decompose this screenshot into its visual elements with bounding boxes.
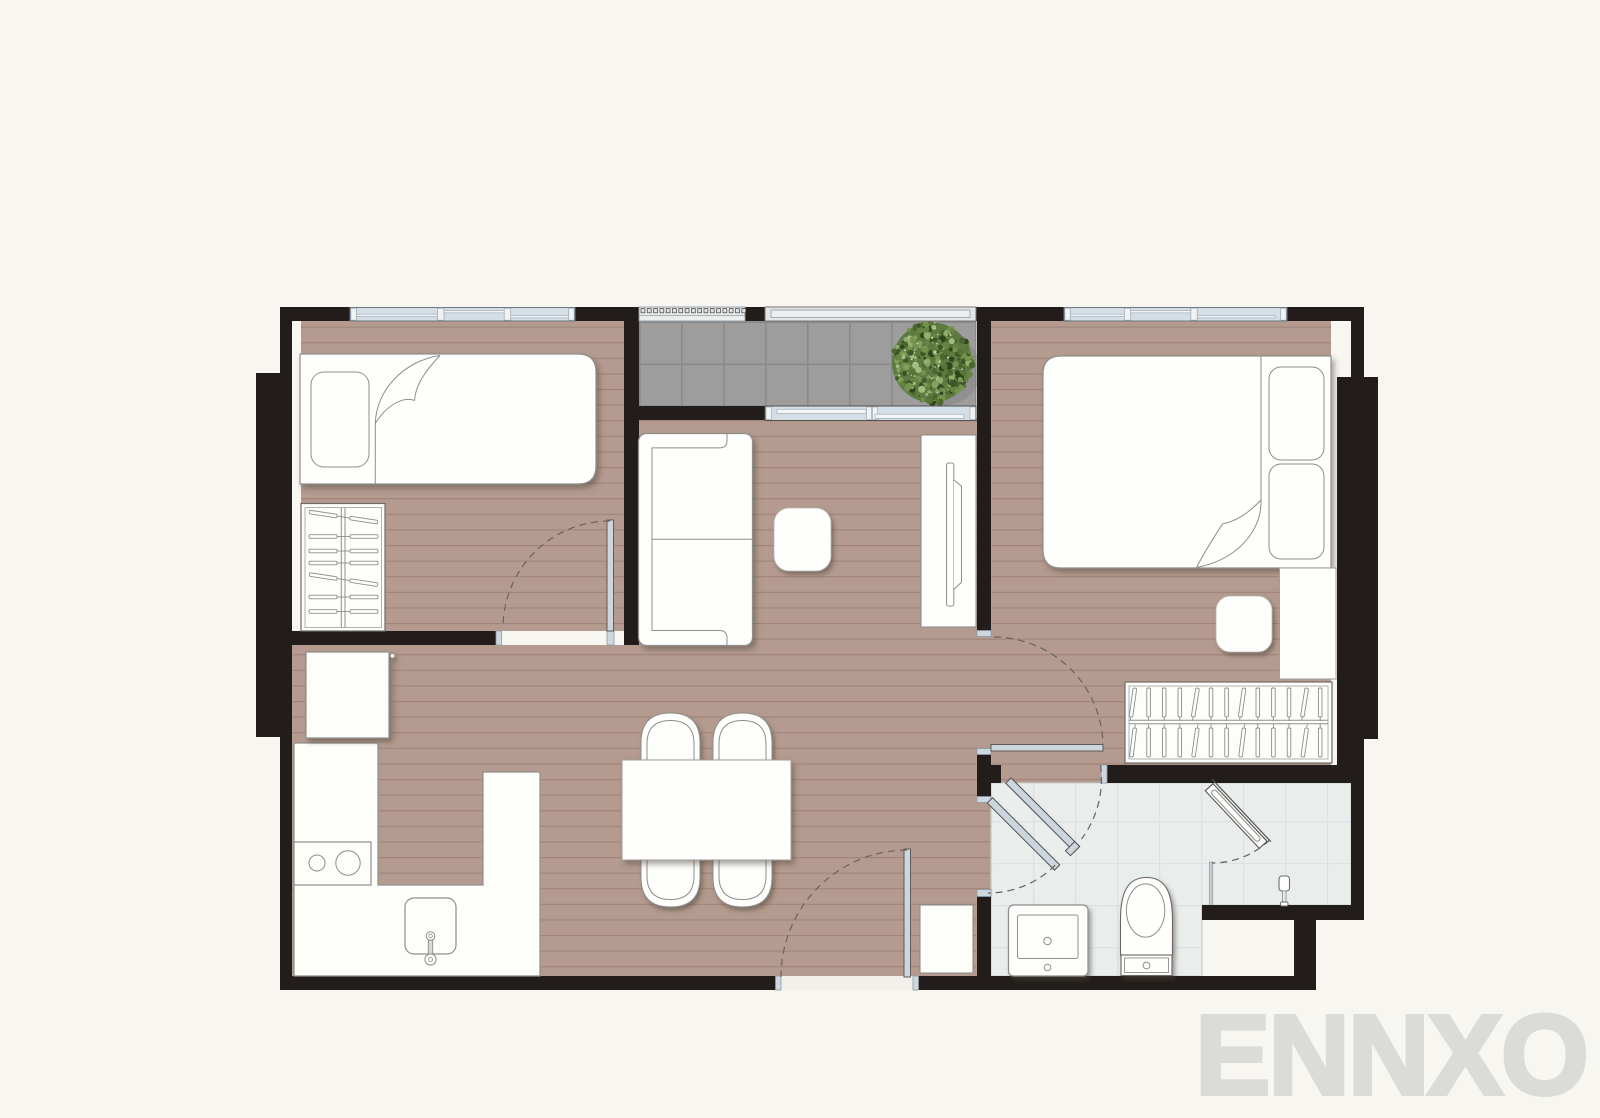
svg-text:ENNXO: ENNXO: [1195, 992, 1587, 1118]
